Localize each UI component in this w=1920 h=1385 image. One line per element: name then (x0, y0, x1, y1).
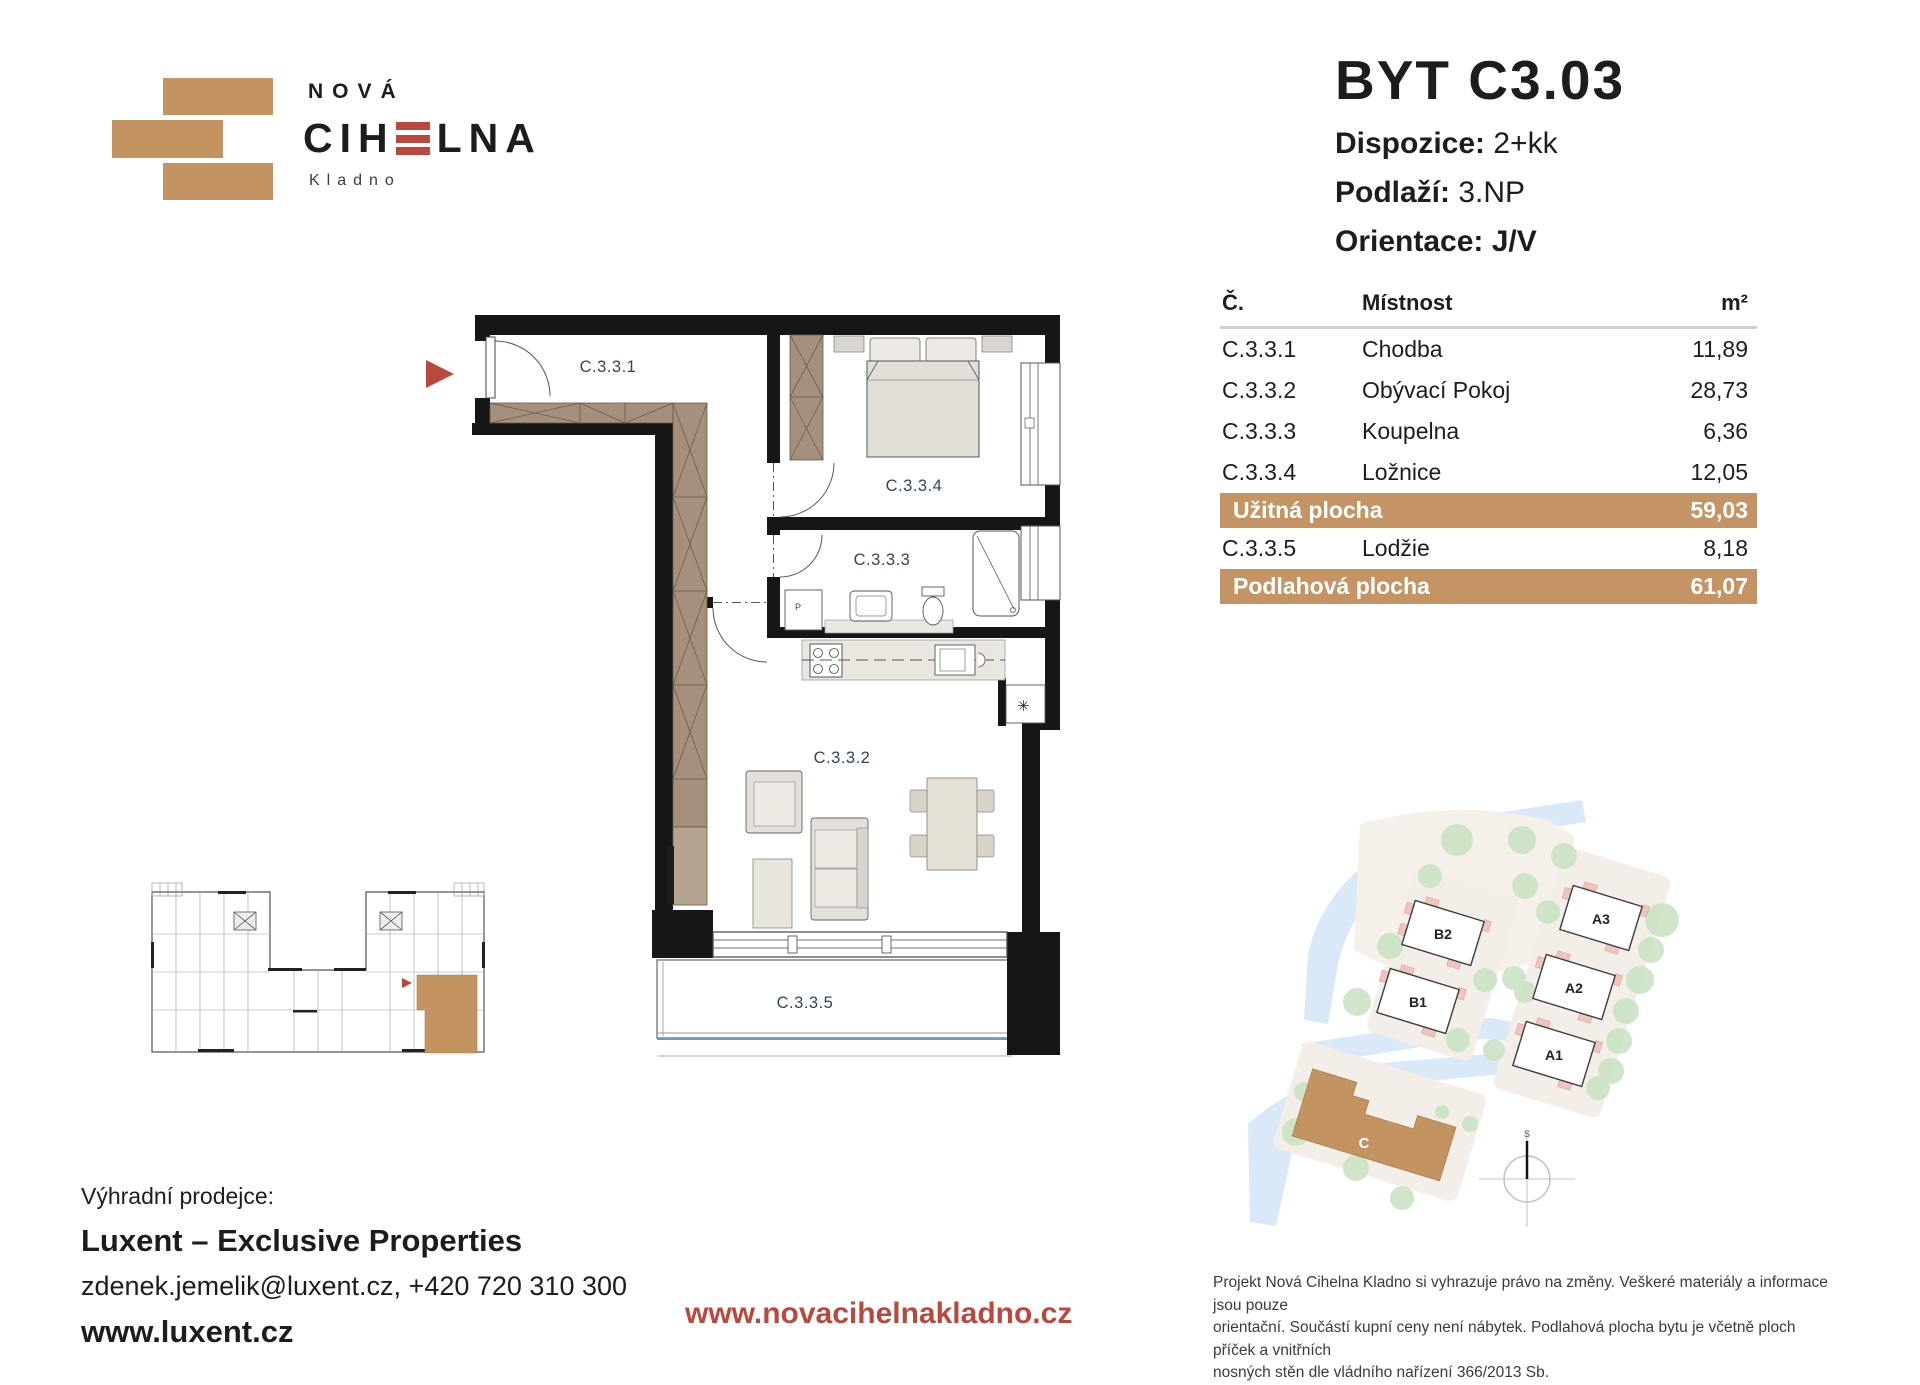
spec-dispozice: Dispozice: 2+kk (1335, 127, 1625, 161)
label-bedroom: C.3.3.4 (886, 477, 943, 495)
row-room: Obývací Pokoj (1362, 377, 1638, 404)
entry-door (473, 337, 550, 398)
spec-orientace-label: Orientace: (1335, 225, 1483, 258)
spec-podlazi-label: Podlaží: (1335, 176, 1450, 209)
row-number: C.3.3.2 (1222, 377, 1362, 404)
building-a2-label: A2 (1565, 980, 1583, 996)
disclaimer-line: orientační. Součástí kupní ceny není náb… (1213, 1317, 1833, 1362)
table-row: C.3.3.5 Lodžie 8,18 (1220, 528, 1757, 569)
building-a3-label: A3 (1592, 911, 1610, 927)
logo-brick-middle (112, 120, 223, 158)
table-row: C.3.3.3 Koupelna 6,36 (1220, 411, 1757, 452)
kitchen: ✳ (802, 640, 1045, 723)
row-room: Chodba (1362, 336, 1638, 363)
logo-text-kladno: Kladno (309, 172, 401, 190)
row-number: C.3.3.3 (1222, 418, 1362, 445)
entry-arrow-icon (426, 360, 454, 388)
usable-area-bar: Užitná plocha 59,03 (1220, 493, 1757, 528)
compass-north-label: S (1524, 1129, 1530, 1139)
seller-contact[interactable]: zdenek.jemelik@luxent.cz, +420 720 310 3… (81, 1271, 627, 1302)
seller-block: Výhradní prodejce: Luxent – Exclusive Pr… (81, 1183, 627, 1350)
building-floor-overview (138, 882, 498, 1062)
living-furniture (746, 771, 994, 928)
unit-title: BYT C3.03 (1335, 48, 1625, 112)
disclaimer-text: Projekt Nová Cihelna Kladno si vyhrazuje… (1213, 1272, 1833, 1385)
compass-icon: S (1479, 1129, 1575, 1227)
logo-text-cihelna: CIH LNA (303, 115, 542, 162)
spec-podlazi: Podlaží: 3.NP (1335, 176, 1625, 210)
table-row: C.3.3.4 Ložnice 12,05 (1220, 452, 1757, 493)
building-a1-label: A1 (1545, 1047, 1563, 1063)
spec-dispozice-value: 2+kk (1493, 127, 1557, 160)
row-area: 11,89 (1638, 336, 1748, 363)
header-room: Místnost (1362, 290, 1638, 316)
room-area-table: Č. Místnost m² C.3.3.1 Chodba 11,89 C.3.… (1220, 290, 1757, 604)
total-area-bar: Podlahová plocha 61,07 (1220, 569, 1757, 604)
disclaimer-line: nosných stěn dle vládního nařízení 366/2… (1213, 1362, 1833, 1385)
bed (834, 336, 1012, 457)
washer-label: P (795, 602, 801, 612)
spec-orientace: Orientace: J/V (1335, 225, 1625, 259)
label-living: C.3.3.2 (814, 749, 871, 767)
usable-area-label: Užitná plocha (1233, 497, 1638, 524)
logo-text-cih: CIH (303, 115, 395, 162)
building-b2-label: B2 (1434, 926, 1452, 942)
logo-brick-top (163, 78, 273, 115)
row-number: C.3.3.4 (1222, 459, 1362, 486)
logo: NOVÁ CIH LNA Kladno (95, 60, 575, 205)
seller-company: Luxent – Exclusive Properties (81, 1223, 627, 1259)
bedroom-window (1021, 363, 1060, 485)
usable-area-value: 59,03 (1638, 497, 1748, 524)
total-area-label: Podlahová plocha (1233, 573, 1638, 600)
seller-website-link[interactable]: www.luxent.cz (81, 1314, 627, 1350)
logo-brick-bottom (163, 163, 273, 200)
row-room: Koupelna (1362, 418, 1638, 445)
building-b1-label: B1 (1409, 994, 1427, 1010)
row-room: Lodžie (1362, 535, 1638, 562)
spec-dispozice-label: Dispozice: (1335, 127, 1485, 160)
table-header: Č. Místnost m² (1220, 290, 1757, 329)
unit-title-block: BYT C3.03 Dispozice: 2+kk Podlaží: 3.NP … (1335, 48, 1625, 259)
row-number: C.3.3.5 (1222, 535, 1362, 562)
living-window-band (713, 932, 1007, 957)
disclaimer-line: Projekt Nová Cihelna Kladno si vyhrazuje… (1213, 1272, 1833, 1317)
floor-plan: P ✳ C.3.3.1 (420, 250, 1080, 1090)
row-room: Ložnice (1362, 459, 1638, 486)
logo-e-bars-icon (396, 122, 430, 155)
row-area: 12,05 (1638, 459, 1748, 486)
header-area: m² (1638, 290, 1748, 316)
row-area: 8,18 (1638, 535, 1748, 562)
header-number: Č. (1222, 290, 1362, 316)
seller-heading: Výhradní prodejce: (81, 1183, 627, 1210)
building-c-label: C (1359, 1135, 1370, 1152)
loggia (657, 960, 1012, 1056)
label-bathroom: C.3.3.3 (854, 551, 911, 569)
logo-text-lna: LNA (437, 115, 542, 162)
row-number: C.3.3.1 (1222, 336, 1362, 363)
label-loggia: C.3.3.5 (777, 994, 834, 1012)
table-row: C.3.3.1 Chodba 11,89 (1220, 329, 1757, 370)
vent-symbol: ✳ (1017, 698, 1030, 715)
spec-podlazi-value: 3.NP (1458, 176, 1525, 209)
row-area: 28,73 (1638, 377, 1748, 404)
highlighted-unit (417, 975, 477, 1053)
label-hall: C.3.3.1 (580, 358, 637, 376)
total-area-value: 61,07 (1638, 573, 1748, 600)
spec-orientace-value: J/V (1492, 225, 1537, 258)
table-row: C.3.3.2 Obývací Pokoj 28,73 (1220, 370, 1757, 411)
project-website-link[interactable]: www.novacihelnakladno.cz (685, 1297, 1072, 1331)
logo-text-nova: NOVÁ (308, 80, 405, 104)
bathroom-window (1021, 526, 1060, 600)
site-plan: B2 B1 A3 A2 A1 C S (1242, 792, 1762, 1257)
row-area: 6,36 (1638, 418, 1748, 445)
